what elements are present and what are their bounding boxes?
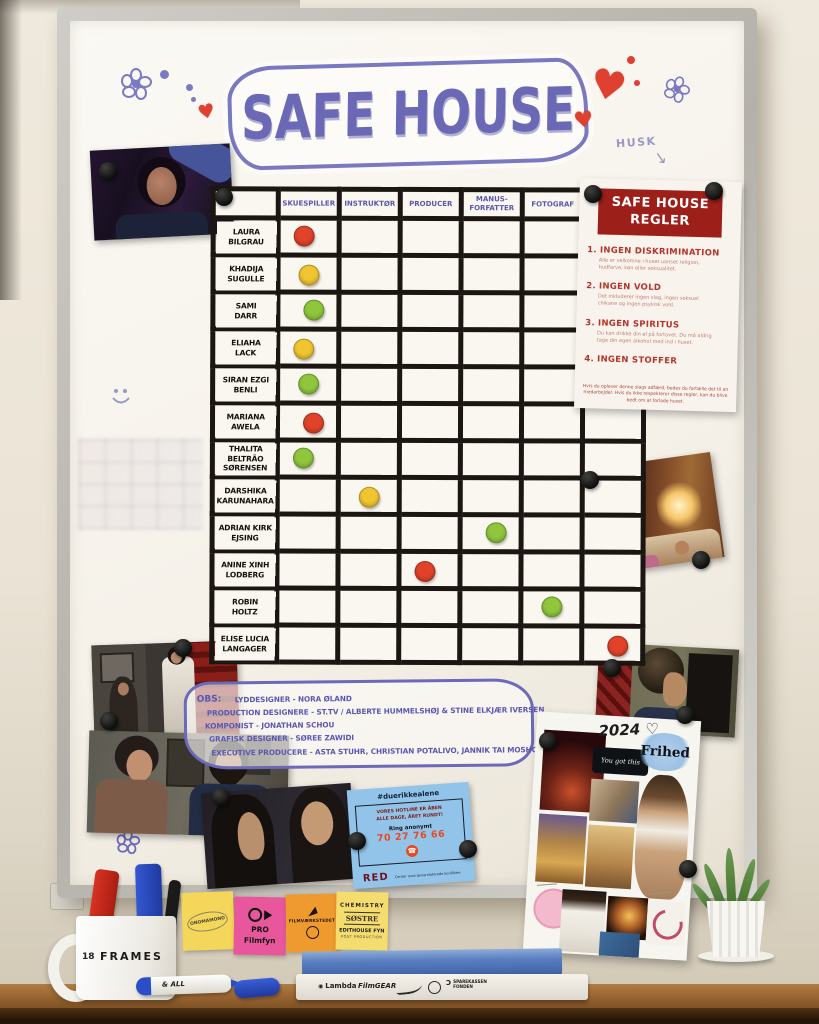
woman-cutout-photo <box>632 774 691 901</box>
lambda-logo: Lambda <box>318 982 356 990</box>
grid-cell <box>521 441 582 478</box>
flower-doodle <box>120 68 152 100</box>
grid-cell <box>400 329 461 366</box>
name-cell: SIRAN EZGI BENLI <box>212 366 278 403</box>
red-org-tagline: Center mod æresrelaterede konflikter <box>395 871 465 880</box>
grid-cell <box>522 293 583 330</box>
board-title: SAFE HOUSE <box>240 74 575 154</box>
scribble-doodle <box>537 883 557 886</box>
column-header: SKUESPILLER <box>278 189 339 218</box>
dot-doodle <box>627 56 635 64</box>
dot-doodle <box>191 97 196 102</box>
magnet-dot <box>292 447 313 468</box>
dot-doodle <box>634 80 640 86</box>
rules-poster: SAFE HOUSE REGLER 1.INGEN DISKRIMINATION… <box>574 178 742 412</box>
magnet-dot <box>414 560 435 581</box>
desert-photo <box>585 825 635 890</box>
grid-cell <box>582 626 643 663</box>
grid-cell <box>460 626 521 663</box>
grid-cell <box>460 589 521 626</box>
grid-cell <box>461 256 522 293</box>
name-cell: ADRIAN KIRK EJSING <box>211 514 277 551</box>
script-logo <box>395 979 422 996</box>
grid-cell <box>399 440 460 477</box>
black-magnet <box>174 639 192 657</box>
hotline-card: #duerikkealene VORES HOTLINE ER ÅBEN ALL… <box>347 782 476 889</box>
grid-cell <box>399 588 460 625</box>
magnet-dot <box>485 522 506 543</box>
name-cell: ROBIN HOLTZ <box>211 588 277 625</box>
grid-cell <box>278 255 339 292</box>
name-cell: THALITA BELTRÃO SØRENSEN <box>212 440 278 477</box>
grid-cell <box>399 551 460 588</box>
hotline-frame: VORES HOTLINE ER ÅBEN ALLE DAGE, ÅRET RU… <box>355 798 467 866</box>
mug-number: 18 <box>82 952 95 962</box>
grid-cell <box>582 515 643 552</box>
name-cell: ELIAHA LACK <box>212 329 278 366</box>
sparekassen-logo: SPAREKASSEN FONDEN <box>446 979 487 990</box>
phone-icon: ☎ <box>406 845 419 858</box>
magnet-dot <box>298 264 319 285</box>
grid-cell <box>460 515 521 552</box>
black-magnet <box>581 471 599 489</box>
emblem-logo <box>428 981 441 994</box>
grid-cell <box>400 292 461 329</box>
black-magnet <box>679 860 697 878</box>
column-header: FOTOGRAF <box>522 190 583 219</box>
onomamono-logo: ONOMAMONO <box>186 908 230 934</box>
grid-cell <box>278 292 339 329</box>
grid-cell <box>461 367 522 404</box>
grid-cell <box>521 478 582 515</box>
filmfyn-label: Filmfyn <box>244 935 276 945</box>
magnet-dot <box>298 373 319 394</box>
emblem-icon <box>306 925 319 938</box>
rule-item: 4.INGEN STOFFER <box>584 354 728 368</box>
obs-credits-bubble: OBS: LYDDESIGNER - NORA ØLAND PRODUCTION… <box>184 678 535 770</box>
whiteboard-marker: & ALL <box>136 974 233 995</box>
rules-poster-title: SAFE HOUSE REGLER <box>598 188 723 237</box>
column-header: MANUS- FORFATTER <box>461 190 522 219</box>
stethoscope-photo <box>645 900 686 946</box>
credit-line: EXECUTIVE PRODUCERE - ASTA STUHR, CHRIST… <box>211 743 525 759</box>
title-doodle-bubble: SAFE HOUSE <box>227 57 590 171</box>
postproduction-label: POST PRODUCTION <box>341 935 382 940</box>
magnet-dot <box>541 596 562 617</box>
grid-cell <box>339 329 400 366</box>
grid-cell <box>522 256 583 293</box>
grid-cell <box>400 366 461 403</box>
name-cell: SAMI DARR <box>212 292 278 329</box>
grid-cell <box>522 330 583 367</box>
rules-poster-footnote: Hvis du oplever denne slags adfærd, bede… <box>582 384 728 407</box>
black-magnet <box>100 712 118 730</box>
grid-cell <box>277 403 338 440</box>
sponsor-folder: Lambda FilmGEAR SPAREKASSEN FONDEN <box>296 974 588 1000</box>
grid-cell <box>338 588 399 625</box>
grid-cell <box>277 514 338 551</box>
heart-doodle: ♥ <box>573 109 596 134</box>
grid-cell <box>399 625 460 662</box>
grid-cell <box>278 366 339 403</box>
grid-row: ANINE XINH LODBERG <box>212 551 643 590</box>
sticky-note-filmvaerkstedet: FILMVÆRKSTEDET <box>285 894 338 953</box>
grid-cell <box>582 404 643 441</box>
black-magnet <box>539 732 557 750</box>
city-skyline-photo <box>535 814 587 885</box>
grid-cell <box>522 219 583 256</box>
grid-cell <box>521 552 582 589</box>
faded-marker-ghost <box>78 438 203 530</box>
edithouse-label: EDITHOUSE FYN <box>339 928 384 935</box>
grid-cell <box>460 441 521 478</box>
grid-cell <box>461 330 522 367</box>
dot-doodle <box>186 84 193 91</box>
pro-label: PRO <box>251 924 269 933</box>
grid-cell <box>521 404 582 441</box>
grid-row: MARIANA AWELA <box>212 403 643 442</box>
mug-brand-label: FRAMES <box>100 950 163 963</box>
magnet-dot <box>358 486 379 507</box>
filmvaerkstedet-label: FILMVÆRKSTEDET <box>289 917 335 923</box>
grid-cell <box>399 403 460 440</box>
plant-pot <box>704 901 768 957</box>
grid-cell <box>582 552 643 589</box>
grid-cell <box>277 551 338 588</box>
grid-cell <box>278 329 339 366</box>
sticky-note-filmfyn: PRO Filmfyn <box>233 897 286 956</box>
black-magnet <box>212 788 230 806</box>
grid-cell <box>338 440 399 477</box>
bird-logo-icon <box>306 906 318 916</box>
name-cell: DARSHIKA KARUNAHARA <box>212 477 278 514</box>
black-magnet <box>99 162 117 180</box>
grid-cell <box>460 478 521 515</box>
grid-cell <box>338 514 399 551</box>
grid-row: DARSHIKA KARUNAHARA <box>212 477 643 516</box>
name-cell: ANINE XINH LODBERG <box>211 551 277 588</box>
grid-cell <box>338 477 399 514</box>
grid-cell <box>339 366 400 403</box>
grid-row: THALITA BELTRÃO SØRENSEN <box>212 440 643 479</box>
name-cell: LAURA BILGRAU <box>212 218 278 255</box>
rule-item: 2.INGEN VOLD Det inkluderer ingen slag, … <box>586 281 731 310</box>
od-logo-icon <box>248 907 272 921</box>
name-cell: MARIANA AWELA <box>212 403 278 440</box>
group-photo <box>589 779 639 824</box>
column-header: PRODUCER <box>400 189 461 218</box>
grid-row: ADRIAN KIRK EJSING <box>212 514 643 553</box>
filmgear-logo: FilmGEAR <box>358 982 396 990</box>
name-cell: KHADIJA SUGULLE <box>212 255 278 292</box>
grid-cell <box>339 218 400 255</box>
black-magnet <box>705 182 723 200</box>
magnet-dot <box>303 299 324 320</box>
magnet-dot <box>302 412 323 433</box>
grid-cell <box>461 219 522 256</box>
sticky-note-chemistry: CHEMISTRY SØSTRE EDITHOUSE FYN POST PROD… <box>335 892 388 951</box>
grid-cell <box>277 625 338 662</box>
grid-cell <box>521 589 582 626</box>
grid-cell <box>521 515 582 552</box>
black-magnet <box>215 188 233 206</box>
magnet-dot <box>293 338 314 359</box>
sticky-note-onomamono: ONOMAMONO <box>181 891 235 951</box>
red-org-logo: RED <box>363 872 390 885</box>
wall-shadow <box>0 0 22 300</box>
table-edge <box>0 1008 819 1024</box>
grid-cell <box>582 589 643 626</box>
grid-row: ELISE LUCIA LANGAGER <box>212 625 643 664</box>
grid-cell <box>339 255 400 292</box>
obs-label: OBS: <box>197 694 222 704</box>
grid-cell <box>277 440 338 477</box>
dot-doodle <box>160 70 169 79</box>
grid-cell <box>400 255 461 292</box>
column-header: INSTRUKTØR <box>339 189 400 218</box>
grid-cell <box>338 551 399 588</box>
chemistry-label: CHEMISTRY <box>340 903 385 910</box>
grid-cell <box>400 218 461 255</box>
scrubs-photo <box>599 931 640 957</box>
grid-cell <box>460 552 521 589</box>
heart-doodle: ♥ <box>196 101 217 123</box>
rule-item: 1.INGEN DISKRIMINATION Alle er velkomne … <box>587 245 732 274</box>
black-magnet <box>603 659 621 677</box>
black-magnet <box>459 840 477 858</box>
name-cell: ELISE LUCIA LANGAGER <box>211 625 277 662</box>
magnet-dot <box>607 635 628 656</box>
grid-cell <box>399 477 460 514</box>
magnet-dot <box>293 225 314 246</box>
sostre-label: SØSTRE <box>344 912 381 926</box>
grid-row: ROBIN HOLTZ <box>212 588 643 627</box>
grid-cell <box>277 588 338 625</box>
grid-cell <box>338 625 399 662</box>
black-magnet <box>676 706 694 724</box>
grid-cell <box>339 292 400 329</box>
whiteboard-scene: SAFE HOUSE ♥ ♥ ♥ HUSK ↘ <box>0 0 819 1024</box>
grid-cell <box>278 218 339 255</box>
marker-brand-label: & ALL <box>162 980 185 989</box>
grid-cell <box>461 293 522 330</box>
black-magnet <box>348 832 366 850</box>
grid-cell <box>460 404 521 441</box>
grid-cell <box>521 626 582 663</box>
rule-item: 3.INGEN SPIRITUS Du kan drikke din øl på… <box>585 318 730 347</box>
black-magnet <box>584 185 602 203</box>
grid-cell <box>277 477 338 514</box>
grid-cell <box>399 514 460 551</box>
smiley-doodle <box>108 386 134 408</box>
black-magnet <box>692 551 710 569</box>
grid-cell <box>338 403 399 440</box>
